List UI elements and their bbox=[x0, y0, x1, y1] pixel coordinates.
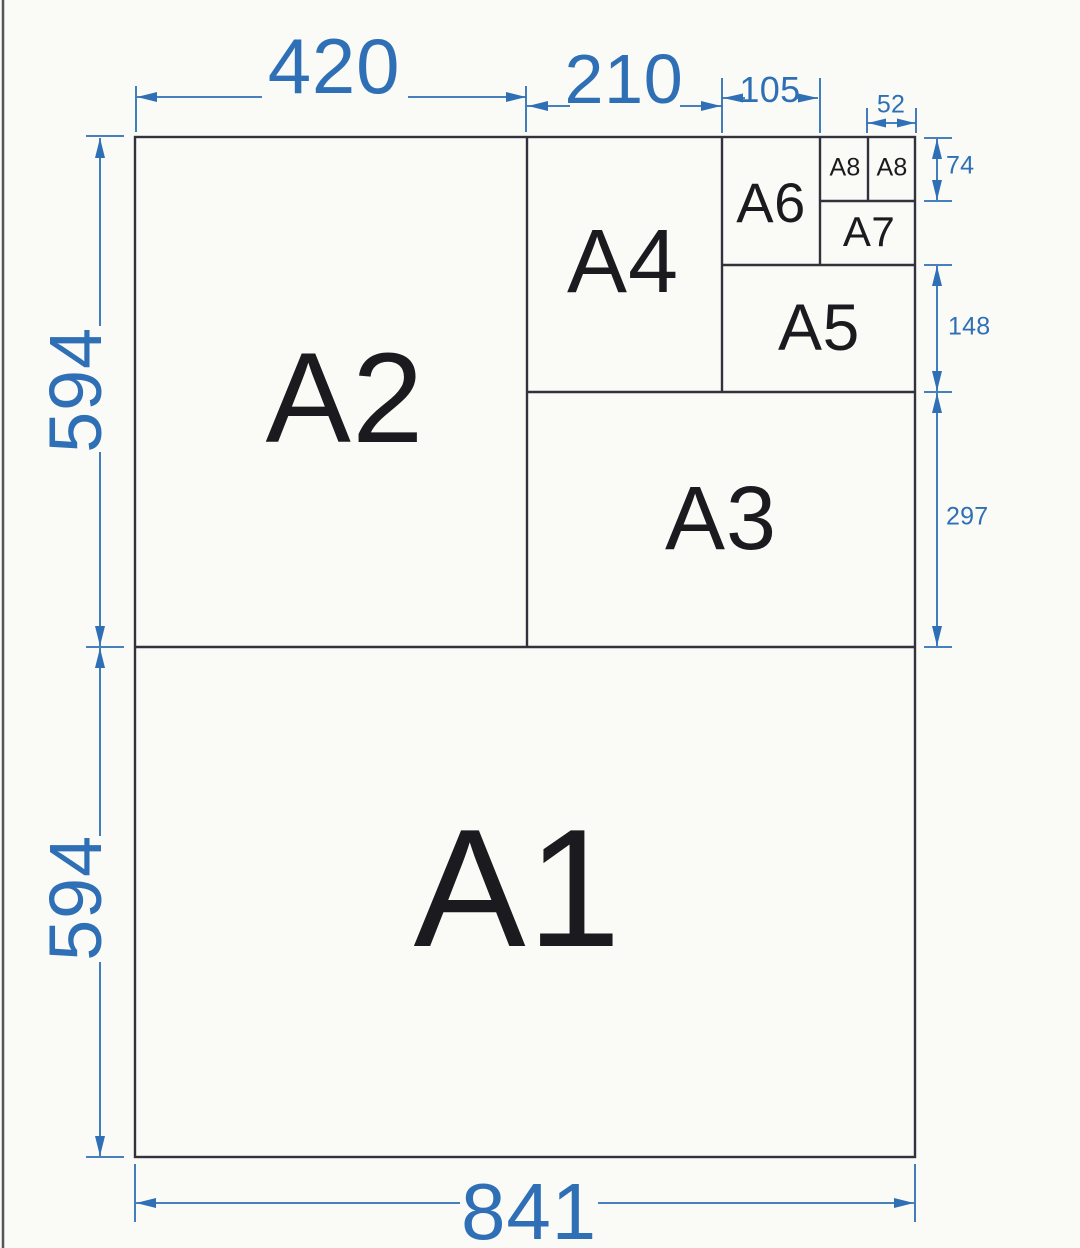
sheet-label-a6: A6 bbox=[736, 175, 806, 231]
sheet-label-a7: A7 bbox=[843, 211, 895, 253]
sheet-label-a2: A2 bbox=[265, 335, 424, 463]
sheet-label-a8-left: A8 bbox=[829, 156, 860, 181]
dim-height-74: 74 bbox=[946, 154, 974, 179]
dim-width-420: 420 bbox=[268, 27, 400, 105]
dim-width-105: 105 bbox=[739, 72, 800, 108]
sheet-label-a8-right: A8 bbox=[876, 156, 907, 181]
drawing-lines bbox=[0, 0, 1080, 1248]
dim-width-210: 210 bbox=[565, 44, 684, 114]
dim-width-52: 52 bbox=[877, 93, 905, 118]
dim-height-297: 297 bbox=[946, 505, 988, 530]
dimension-arrowheads bbox=[95, 92, 942, 1208]
paper-size-diagram: A1 A2 A3 A4 A5 A6 A7 A8 A8 420 210 105 5… bbox=[0, 0, 1080, 1248]
sheet-label-a4: A4 bbox=[567, 217, 679, 307]
sheet-label-a1: A1 bbox=[414, 804, 623, 972]
dimension-lines bbox=[86, 78, 952, 1222]
dim-width-841: 841 bbox=[461, 1172, 597, 1248]
dim-height-148: 148 bbox=[948, 315, 990, 340]
sheet-label-a5: A5 bbox=[778, 294, 860, 360]
sheet-label-a3: A3 bbox=[665, 474, 777, 564]
dim-height-594-top: 594 bbox=[39, 327, 113, 453]
dim-height-594-bottom: 594 bbox=[39, 835, 113, 961]
